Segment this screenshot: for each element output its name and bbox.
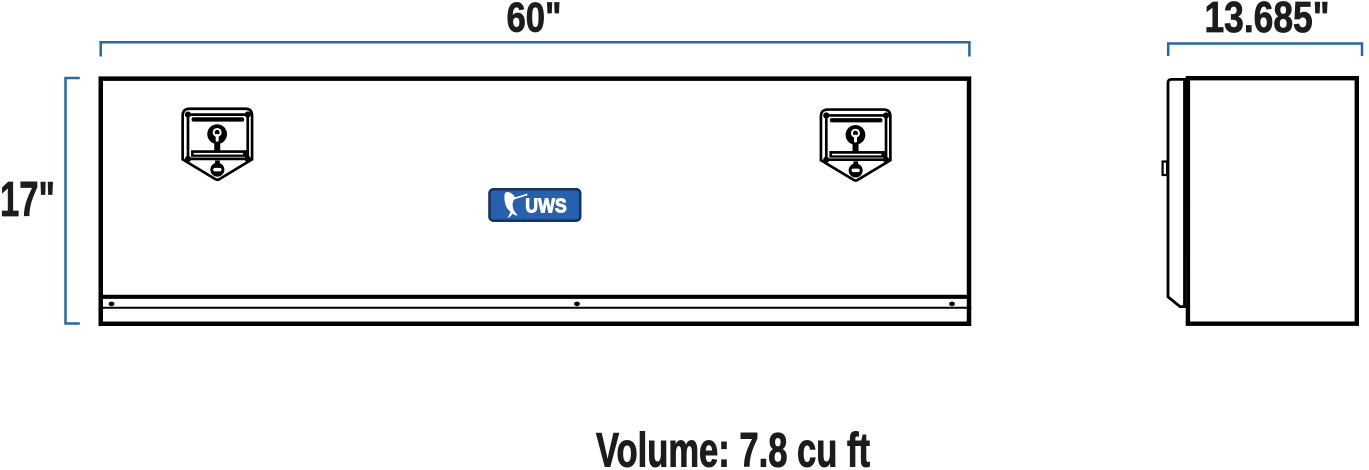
svg-text:13.685": 13.685" <box>1205 0 1330 42</box>
svg-text:Volume: 7.8 cu ft: Volume: 7.8 cu ft <box>596 425 870 470</box>
svg-text:17": 17" <box>0 173 55 227</box>
svg-text:UWS: UWS <box>525 195 567 218</box>
svg-text:60": 60" <box>507 0 562 41</box>
